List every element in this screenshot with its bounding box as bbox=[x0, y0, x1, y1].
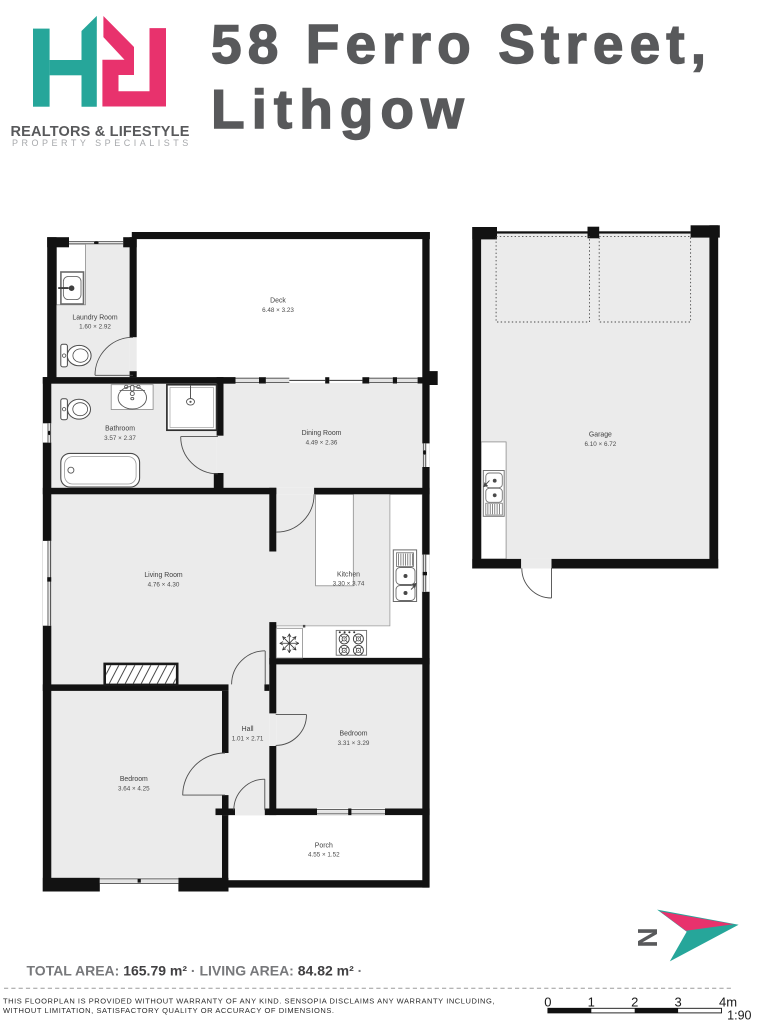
svg-text:1:90: 1:90 bbox=[727, 1008, 751, 1022]
svg-text:Bathroom: Bathroom bbox=[105, 426, 135, 433]
svg-text:3: 3 bbox=[674, 995, 681, 1010]
svg-text:4.76 × 4.30: 4.76 × 4.30 bbox=[148, 581, 180, 588]
svg-text:0: 0 bbox=[544, 995, 551, 1010]
svg-text:6.10 × 6.72: 6.10 × 6.72 bbox=[585, 441, 617, 448]
svg-text:Hall: Hall bbox=[242, 726, 254, 733]
svg-text:3.64 × 4.25: 3.64 × 4.25 bbox=[118, 785, 150, 792]
svg-text:Bedroom: Bedroom bbox=[340, 731, 368, 738]
svg-text:1.01 × 2.71: 1.01 × 2.71 bbox=[232, 735, 264, 742]
svg-text:3.30 × 3.74: 3.30 × 3.74 bbox=[333, 581, 365, 588]
svg-text:Lithgow: Lithgow bbox=[211, 78, 471, 140]
svg-text:6.48 × 3.23: 6.48 × 3.23 bbox=[262, 307, 294, 314]
svg-text:4.55 × 1.52: 4.55 × 1.52 bbox=[308, 852, 340, 859]
svg-text:Dining Room: Dining Room bbox=[302, 430, 342, 437]
svg-text:1: 1 bbox=[588, 995, 595, 1010]
svg-text:Deck: Deck bbox=[270, 298, 286, 305]
svg-text:1.60 × 2.92: 1.60 × 2.92 bbox=[79, 324, 111, 331]
svg-text:2: 2 bbox=[631, 995, 638, 1010]
svg-text:TOTAL AREA: 165.79 m² · LIVING: TOTAL AREA: 165.79 m² · LIVING AREA: 84.… bbox=[27, 963, 363, 979]
svg-text:58 Ferro Street,: 58 Ferro Street, bbox=[211, 13, 712, 75]
svg-text:Living Room: Living Room bbox=[144, 572, 183, 579]
svg-text:WITHOUT LIMITATION, SATISFACTO: WITHOUT LIMITATION, SATISFACTORY QUALITY… bbox=[3, 1006, 335, 1015]
svg-text:Bedroom: Bedroom bbox=[120, 776, 148, 783]
svg-text:PROPERTY SPECIALISTS: PROPERTY SPECIALISTS bbox=[12, 138, 192, 148]
svg-text:Laundry Room: Laundry Room bbox=[72, 315, 117, 322]
svg-text:3.31 × 3.29: 3.31 × 3.29 bbox=[338, 740, 370, 747]
svg-text:3.57 × 2.37: 3.57 × 2.37 bbox=[104, 435, 136, 442]
svg-text:Garage: Garage bbox=[589, 432, 612, 439]
svg-text:THIS FLOORPLAN IS PROVIDED WIT: THIS FLOORPLAN IS PROVIDED WITHOUT WARRA… bbox=[3, 997, 495, 1006]
svg-text:N: N bbox=[632, 927, 663, 947]
svg-text:4.49 × 2.36: 4.49 × 2.36 bbox=[306, 439, 338, 446]
svg-text:Porch: Porch bbox=[315, 842, 333, 849]
svg-text:Kitchen: Kitchen bbox=[337, 571, 360, 578]
